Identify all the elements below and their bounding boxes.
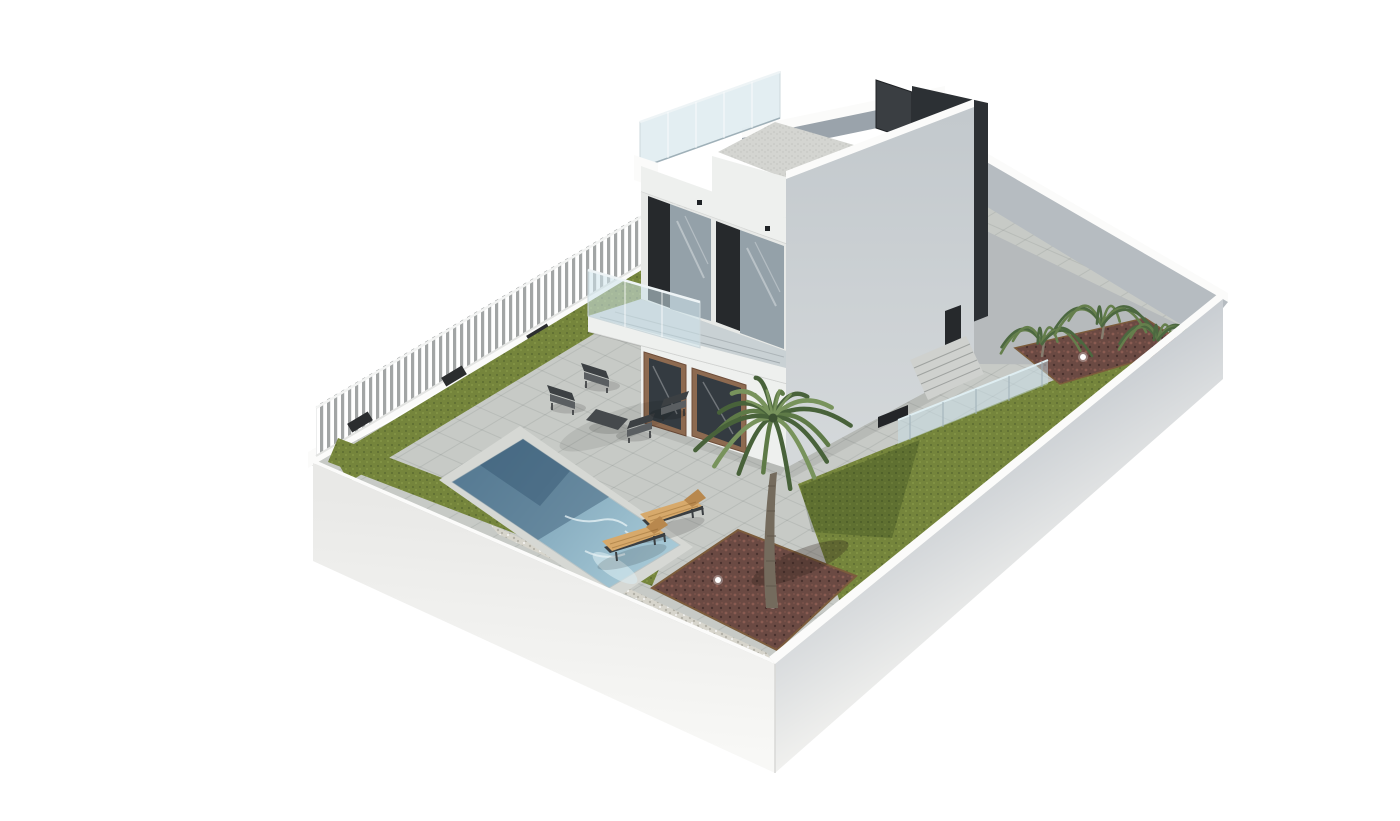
villa-render-figure: 3D architectural render of a modern vill… [40,16,1400,805]
facade-light-icon [765,226,770,231]
facade-light-icon [697,200,702,205]
architectural-render [40,16,1400,805]
palm-crown-center [769,414,778,423]
